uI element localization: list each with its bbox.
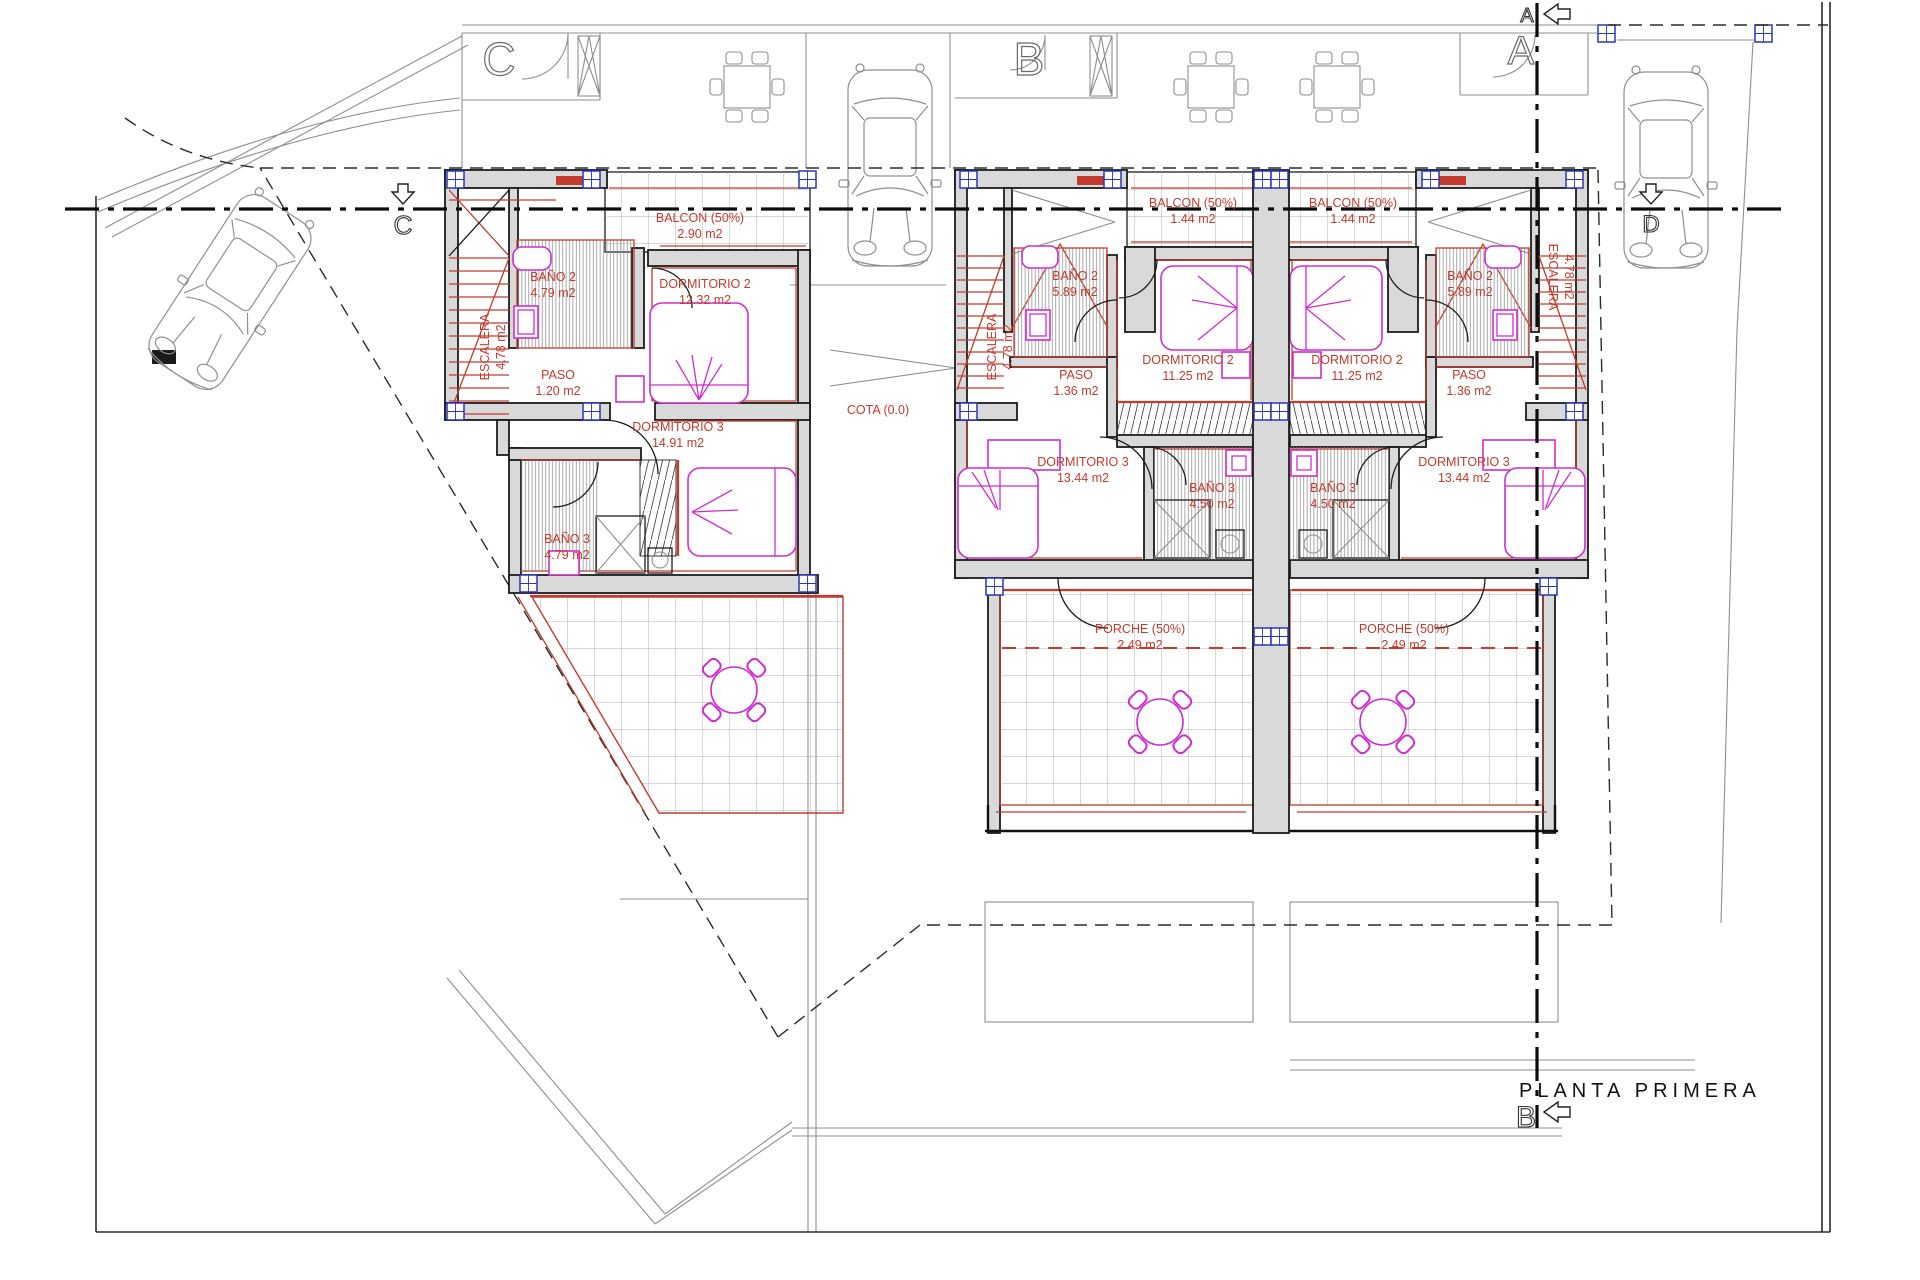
door-letter-a: A xyxy=(1508,29,1535,73)
room-area: 4.50 m2 xyxy=(1310,497,1355,511)
room-label: ESCALERA xyxy=(1546,244,1560,311)
room-area: 11.25 m2 xyxy=(1162,369,1213,383)
room-area: 1.36 m2 xyxy=(1053,384,1098,398)
room-area: 5.89 m2 xyxy=(1052,285,1097,299)
room-area: 4.78 m2 xyxy=(494,324,508,369)
room-label: PORCHE (50%) xyxy=(1095,622,1185,636)
room-area: 2.90 m2 xyxy=(677,227,722,241)
room-label: DORMITORIO 2 xyxy=(1142,353,1233,367)
unit-middle xyxy=(955,170,1288,833)
section-letter-c: C xyxy=(394,210,413,240)
room-area: 13.44 m2 xyxy=(1057,471,1109,485)
page-title: PLANTA PRIMERA xyxy=(1519,1080,1761,1102)
room-label: PASO xyxy=(1452,368,1486,382)
section-a-arrow-icon xyxy=(1544,4,1570,24)
room-label: DORMITORIO 3 xyxy=(632,420,723,434)
room-label: ESCALERA xyxy=(985,313,999,380)
section-b-arrow-icon xyxy=(1544,1102,1570,1122)
room-area: 5.89 m2 xyxy=(1447,285,1492,299)
cota-label: COTA (0.0) xyxy=(847,403,909,417)
floor-plan-drawing: C B A A C D B BALCON (50%) 2.90 m2 BAÑO … xyxy=(0,0,1920,1280)
room-area: 1.44 m2 xyxy=(1170,212,1215,226)
car-icon xyxy=(134,177,330,402)
room-area: 11.25 m2 xyxy=(1331,369,1382,383)
room-label: BAÑO 2 xyxy=(1052,269,1098,283)
room-area: 4.50 m2 xyxy=(1189,497,1234,511)
room-label: DORMITORIO 3 xyxy=(1418,455,1509,469)
section-letter-a: A xyxy=(1520,5,1534,27)
room-label: BAÑO 2 xyxy=(1447,269,1493,283)
door-letter-c: C xyxy=(482,33,515,85)
room-label: BALCON (50%) xyxy=(1149,196,1237,210)
room-area: 2.49 m2 xyxy=(1381,638,1426,652)
room-label: DORMITORIO 2 xyxy=(1311,353,1402,367)
section-letter-d: D xyxy=(1642,211,1659,238)
floor-plan-page: C B A A C D B BALCON (50%) 2.90 m2 BAÑO … xyxy=(0,0,1920,1280)
unit-right xyxy=(1255,170,1588,833)
room-area: 1.44 m2 xyxy=(1330,212,1375,226)
car-icon xyxy=(1615,66,1717,268)
car-icon xyxy=(839,64,941,266)
door-letter-b: B xyxy=(1014,33,1045,85)
room-label: BAÑO 3 xyxy=(1189,481,1235,495)
room-label: PASO xyxy=(1059,368,1093,382)
room-label: PASO xyxy=(541,368,575,382)
room-area: 1.20 m2 xyxy=(535,384,580,398)
room-label: BALCON (50%) xyxy=(1309,196,1397,210)
room-label: DORMITORIO 3 xyxy=(1037,455,1128,469)
section-c-arrow-icon xyxy=(392,184,414,204)
room-area: 2.49 m2 xyxy=(1117,638,1162,652)
unit-left xyxy=(445,170,843,813)
room-label: ESCALERA xyxy=(478,313,492,380)
room-area: 4.78 m2 xyxy=(1001,324,1015,369)
section-d-arrow-icon xyxy=(1640,184,1662,204)
room-area: 12.32 m2 xyxy=(679,293,731,307)
room-label: BALCON (50%) xyxy=(656,211,744,225)
room-label: PORCHE (50%) xyxy=(1359,622,1449,636)
room-area: 4.79 m2 xyxy=(530,286,575,300)
section-letter-b: B xyxy=(1516,1101,1536,1134)
room-label: BAÑO 3 xyxy=(1310,481,1356,495)
room-area: 1.36 m2 xyxy=(1446,384,1491,398)
room-area: 4.78 m2 xyxy=(1562,254,1576,299)
room-label: BAÑO 3 xyxy=(544,532,590,546)
party-wall xyxy=(1253,170,1289,833)
room-area: 14.91 m2 xyxy=(652,436,704,450)
room-label: DORMITORIO 2 xyxy=(659,277,750,291)
room-label: BAÑO 2 xyxy=(530,270,576,284)
room-area: 13.44 m2 xyxy=(1438,471,1490,485)
room-area: 4.79 m2 xyxy=(544,548,589,562)
